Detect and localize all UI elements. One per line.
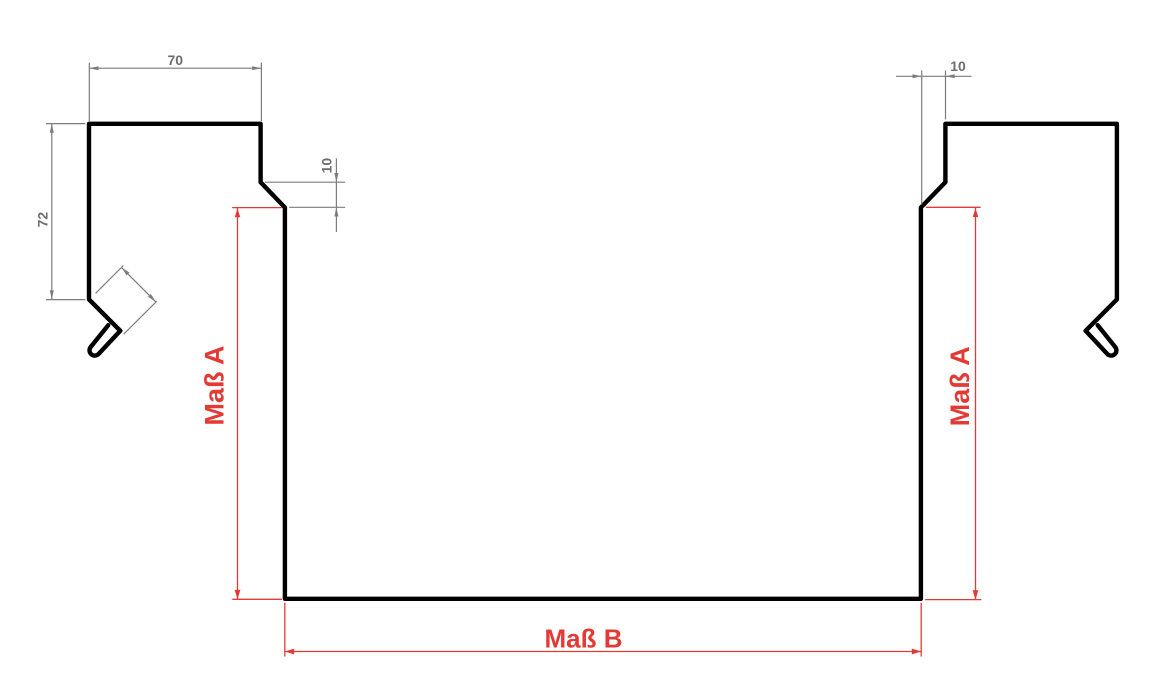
svg-text:72: 72 (34, 212, 50, 228)
svg-text:10: 10 (950, 58, 966, 74)
svg-text:Maß B: Maß B (545, 624, 623, 654)
svg-text:70: 70 (168, 52, 184, 68)
svg-text:10: 10 (319, 158, 335, 174)
svg-text:Maß A: Maß A (945, 346, 975, 426)
svg-text:Maß A: Maß A (199, 346, 229, 426)
